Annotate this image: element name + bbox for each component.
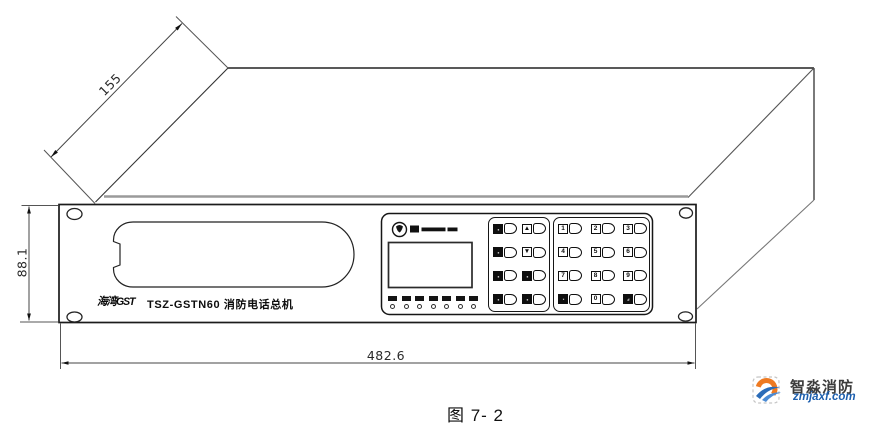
function-key-7: ▪▪ [493,294,517,305]
numeric-key-button-5 [602,247,615,258]
function-key-button-2 [533,223,546,234]
numeric-key-label-6: 6 [623,247,633,257]
numeric-key-label-5: 5 [591,247,601,257]
indicator-lamp-3 [417,304,422,309]
function-key-button-7 [504,294,517,305]
numeric-key-8: 8 [591,270,615,281]
watermark-logo-icon [752,374,786,406]
dim-arrow-height-bottom [27,314,31,321]
numeric-key-button-7 [569,270,582,281]
dimension-width-label: 482.6 [356,348,416,363]
numeric-key-label-4: 4 [558,247,568,257]
indicator-label-2 [402,296,411,301]
numeric-key-button-4 [569,247,582,258]
numeric-key-label-8: 8 [591,271,601,281]
indicator-5 [442,296,451,309]
indicator-row [388,296,480,309]
numeric-key-label-7: 7 [558,271,568,281]
numeric-key-label-9: 9 [623,271,633,281]
dimension-height-label: 88.1 [15,241,30,285]
dim-line-depth [51,24,182,158]
numeric-key-1: 1 [558,223,582,234]
indicator-label-1 [388,296,397,301]
numeric-key-button-10 [569,294,582,305]
indicator-2 [402,296,411,309]
lcd-display [389,243,473,288]
indicator-label-3 [415,296,424,301]
numeric-key-label-10: * [558,294,568,304]
numeric-key-button-12 [634,294,647,305]
function-key-3: ▪▪ [493,247,517,258]
indicator-label-6 [456,296,465,301]
indicator-lamp-5 [444,304,449,309]
numeric-key-7: 7 [558,270,582,281]
numeric-key-9: 9 [623,270,647,281]
panel-title-bar-2 [422,228,446,232]
function-key-label-5: ▪▪ [493,271,503,281]
indicator-1 [388,296,397,309]
indicator-lamp-2 [404,304,409,309]
screw-hole-top-left [67,209,82,220]
figure-caption: 图 7- 2 [447,401,504,426]
dim-arrow-width-left [62,361,69,365]
function-key-label-2: ▲ [522,224,532,234]
screw-hole-top-right [680,208,693,218]
numeric-key-label-3: 3 [623,224,633,234]
numeric-key-button-2 [602,223,615,234]
function-key-button-3 [504,247,517,258]
function-key-5: ▪▪ [493,270,517,281]
indicator-6 [456,296,465,309]
function-key-button-6 [533,270,546,281]
numeric-key-label-12: # [623,294,633,304]
dim-arrow-width-right [688,361,695,365]
indicator-lamp-6 [458,304,463,309]
drawing-svg [0,0,889,432]
indicator-7 [469,296,478,309]
numeric-key-2: 2 [591,223,615,234]
numeric-keypad: 123456789*0# [553,217,650,312]
function-key-4: ▼ [522,247,546,258]
function-key-6: ▪▪ [522,270,546,281]
watermark: 智淼消防 zmjaxf.com [752,373,872,409]
chassis-top-right-diagonal [688,68,814,198]
numeric-key-label-2: 2 [591,224,601,234]
function-key-8: ▪▪ [522,294,546,305]
dim-ext-depth-lower [44,150,95,204]
screw-hole-bottom-left [67,312,82,322]
numeric-key-10: * [558,294,582,305]
numeric-key-11: 0 [591,294,615,305]
numeric-key-button-3 [634,223,647,234]
dim-arrow-height-top [27,207,31,214]
indicator-label-5 [442,296,451,301]
function-key-label-7: ▪▪ [493,294,503,304]
indicator-label-4 [429,296,438,301]
function-key-2: ▲ [522,223,546,234]
indicator-lamp-7 [471,304,476,309]
chassis-bottom-right-diagonal [697,200,814,309]
numeric-key-12: # [623,294,647,305]
function-key-1: ▪▪ [493,223,517,234]
numeric-key-button-11 [602,294,615,305]
indicator-lamp-1 [390,304,395,309]
function-key-label-4: ▼ [522,247,532,257]
numeric-key-button-1 [569,223,582,234]
function-key-button-1 [504,223,517,234]
function-key-label-3: ▪▪ [493,247,503,257]
indicator-4 [429,296,438,309]
numeric-key-5: 5 [591,247,615,258]
function-key-label-6: ▪▪ [522,271,532,281]
screw-hole-bottom-right [679,312,693,321]
function-key-button-8 [533,294,546,305]
panel-title-bar-1 [410,226,419,233]
numeric-key-label-1: 1 [558,224,568,234]
numeric-key-button-6 [634,247,647,258]
function-key-button-4 [533,247,546,258]
panel-title-bar-3 [448,228,458,232]
indicator-lamp-4 [431,304,436,309]
brand-logo: 海湾GST [97,294,135,310]
figure-drawing: 155 88.1 482.6 海湾GST TSZ-GSTN60 消防电话总机 ▪… [0,0,889,432]
watermark-url: zmjaxf.com [793,391,856,403]
function-key-label-1: ▪▪ [493,224,503,234]
numeric-key-6: 6 [623,247,647,258]
dim-ext-depth-upper [176,17,228,69]
indicator-3 [415,296,424,309]
numeric-key-label-11: 0 [591,294,601,304]
function-key-button-5 [504,270,517,281]
numeric-key-button-9 [634,270,647,281]
numeric-key-3: 3 [623,223,647,234]
model-label: TSZ-GSTN60 消防电话总机 [147,296,294,312]
function-keypad: ▪▪▲▪▪▼▪▪▪▪▪▪▪▪ [488,217,550,312]
numeric-key-button-8 [602,270,615,281]
function-key-label-8: ▪▪ [522,294,532,304]
numeric-key-4: 4 [558,247,582,258]
indicator-label-7 [469,296,478,301]
